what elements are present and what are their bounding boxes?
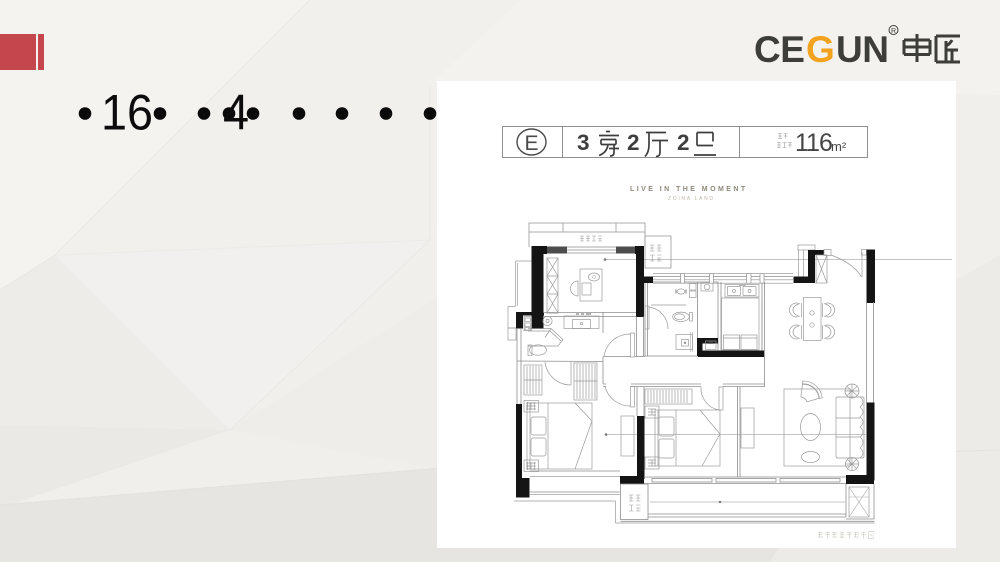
svg-text:3: 3 xyxy=(577,130,590,155)
svg-text:2: 2 xyxy=(627,130,640,155)
svg-text:UN: UN xyxy=(836,29,888,68)
svg-text:m²: m² xyxy=(831,139,847,154)
svg-text:R: R xyxy=(891,28,896,35)
svg-text:G: G xyxy=(806,29,835,68)
svg-text:116: 116 xyxy=(795,129,832,157)
svg-text:CE: CE xyxy=(754,29,804,68)
svg-text:E: E xyxy=(524,132,538,155)
svg-text:4: 4 xyxy=(223,85,249,141)
svg-text:16: 16 xyxy=(101,85,153,141)
svg-text:2: 2 xyxy=(677,130,690,155)
